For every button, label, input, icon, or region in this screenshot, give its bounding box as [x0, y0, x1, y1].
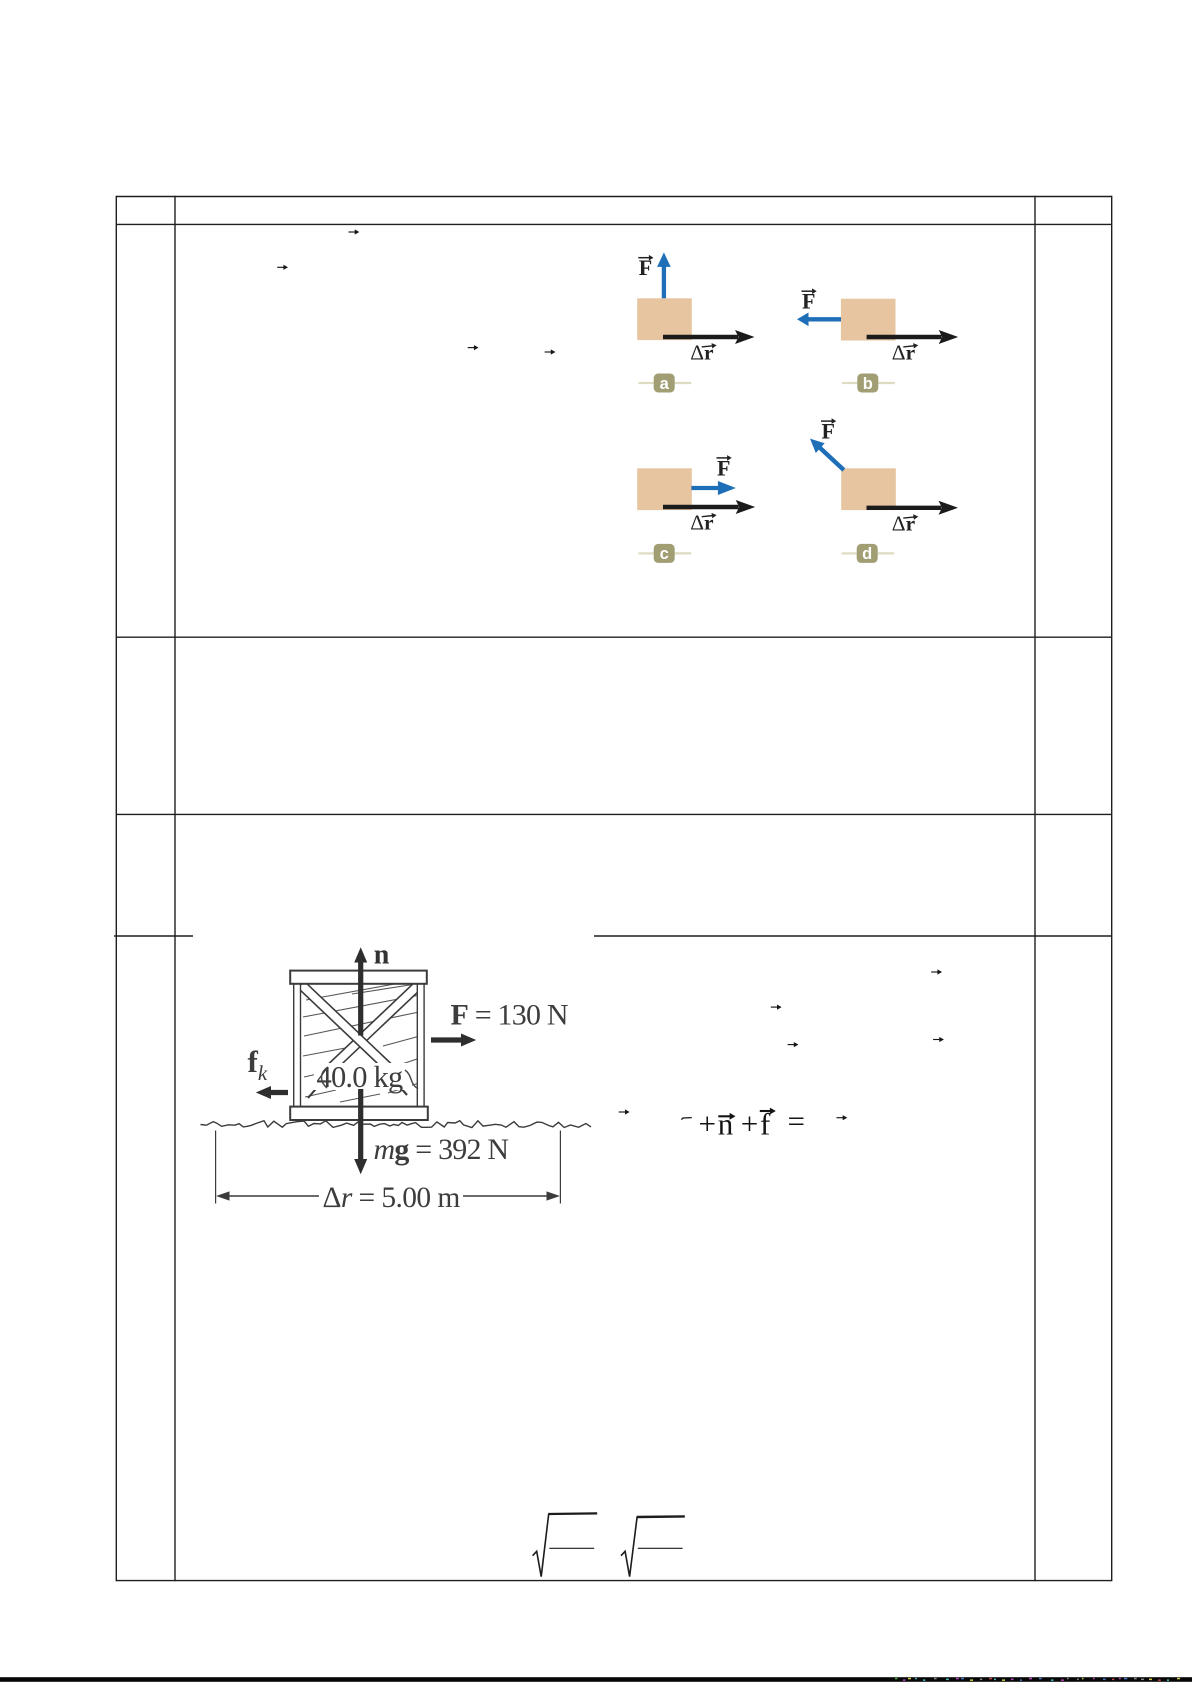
- svg-text:Δr: Δr: [690, 510, 714, 534]
- svg-text:Δr = 5.00 m: Δr = 5.00 m: [323, 1182, 461, 1214]
- svg-text:+: +: [699, 1106, 716, 1141]
- svg-text:=: =: [788, 1104, 805, 1139]
- svg-text:c: c: [660, 545, 669, 563]
- svg-text:a: a: [660, 375, 670, 393]
- svg-text:Δr: Δr: [892, 512, 916, 536]
- svg-text:d: d: [862, 545, 872, 563]
- svg-text:Δr: Δr: [690, 341, 714, 365]
- svg-text:+: +: [741, 1106, 758, 1141]
- svg-text:40.0 kg: 40.0 kg: [317, 1060, 403, 1094]
- svg-text:F = 130 N: F = 130 N: [451, 999, 568, 1032]
- svg-text:Δr: Δr: [892, 341, 916, 365]
- svg-text:n: n: [718, 1107, 734, 1142]
- svg-text:n: n: [374, 940, 390, 971]
- svg-text:b: b: [863, 375, 873, 393]
- svg-text:mg = 392 N: mg = 392 N: [374, 1133, 509, 1166]
